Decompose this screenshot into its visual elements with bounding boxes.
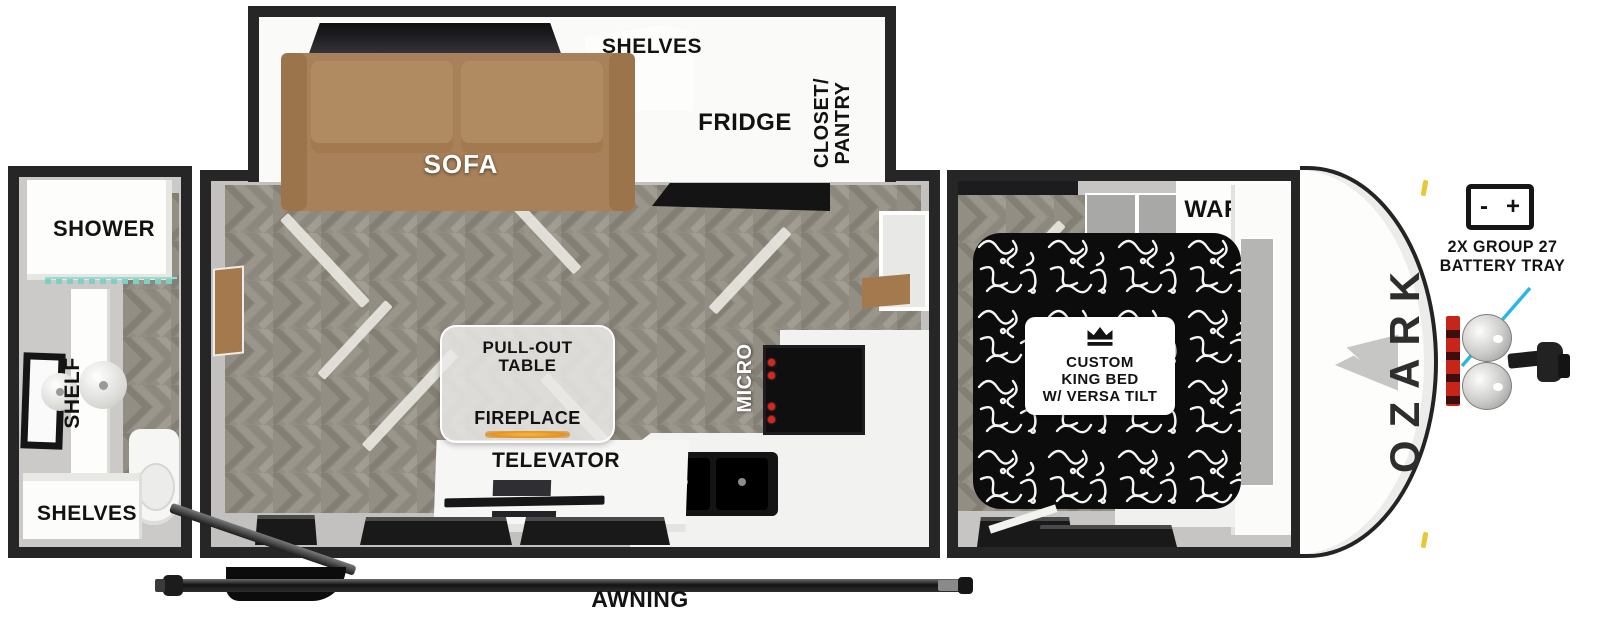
pullout-label-line1: PULL-OUT bbox=[442, 339, 613, 357]
sofa-cushion bbox=[461, 61, 603, 153]
closet-label-line1: CLOSET/ bbox=[811, 78, 833, 168]
tv-bar bbox=[444, 496, 604, 508]
front-cap: OZARK bbox=[1300, 166, 1438, 558]
bed-label-box: CUSTOM KING BED W/ VERSA TILT bbox=[1025, 317, 1175, 415]
clearance-light-bottom bbox=[1421, 532, 1429, 549]
micro-label: MICRO bbox=[735, 328, 761, 428]
pull-out-table: PULL-OUT TABLE FIREPLACE bbox=[440, 325, 615, 443]
sofa-armrest-left bbox=[281, 53, 307, 211]
battery-tray bbox=[1446, 316, 1460, 406]
side-table bbox=[862, 274, 910, 308]
awning-end-left bbox=[163, 575, 183, 596]
closet-label-line2: PANTRY bbox=[832, 82, 854, 165]
bottom-window-2 bbox=[520, 517, 670, 545]
sofa-slideout-section: SHELVES FRIDGE CLOSET/ PANTRY SOFA bbox=[248, 6, 896, 182]
battery-icon: - + bbox=[1466, 184, 1534, 230]
battery-label-line1: 2X GROUP 27 bbox=[1425, 237, 1580, 256]
awning-knob-left bbox=[155, 579, 165, 592]
battery-plus: + bbox=[1506, 193, 1520, 221]
bedroom-section: WARD CUSTOM KING BED W/ VERSA TILT bbox=[947, 170, 1302, 558]
fireplace-label: FIREPLACE bbox=[442, 409, 613, 428]
shower-glass-door bbox=[45, 277, 177, 284]
bedroom-bottom-window bbox=[1035, 525, 1177, 547]
sofa-armrest-right bbox=[609, 53, 635, 211]
awning-label: AWNING bbox=[540, 587, 740, 611]
closet-pantry-label: CLOSET/ PANTRY bbox=[812, 73, 864, 173]
floorplan-canvas: SHOWER SHELF SHELVES bbox=[0, 0, 1600, 638]
stove bbox=[763, 345, 865, 435]
bed-label-line1: CUSTOM bbox=[1025, 355, 1175, 371]
shelf-label: SHELF bbox=[62, 348, 88, 438]
battery-tray-label: 2X GROUP 27 BATTERY TRAY bbox=[1425, 237, 1580, 275]
televator-label: TELEVATOR bbox=[455, 450, 656, 472]
bed-label-line2: KING BED bbox=[1025, 372, 1175, 388]
clearance-light-top bbox=[1421, 180, 1429, 197]
rear-bath-section: SHOWER SHELF SHELVES bbox=[8, 166, 192, 558]
sofa: SOFA bbox=[281, 53, 635, 211]
bedroom-window bbox=[958, 181, 1078, 195]
sofa-cushion bbox=[311, 61, 453, 153]
fireplace-flame bbox=[485, 431, 571, 438]
crown-icon bbox=[1085, 325, 1115, 349]
tv-base bbox=[492, 511, 556, 517]
hitch-knob bbox=[1558, 354, 1570, 378]
tv bbox=[493, 480, 552, 496]
bath-shelves-label: SHELVES bbox=[27, 503, 147, 525]
bottom-window-1 bbox=[360, 517, 512, 545]
pullout-label-line2: TABLE bbox=[442, 357, 613, 375]
main-section: MICRO TELEVATOR PULL-OUT TABLE FIREPLACE bbox=[200, 170, 940, 558]
awning-end-right bbox=[958, 577, 973, 594]
battery-minus: - bbox=[1480, 193, 1488, 221]
wardrobe-door bbox=[1239, 237, 1275, 487]
battery-tank-2 bbox=[1462, 362, 1512, 410]
sofa-label: SOFA bbox=[391, 151, 531, 178]
bed-label-line3: W/ VERSA TILT bbox=[1025, 389, 1175, 405]
fridge-label: FRIDGE bbox=[685, 110, 805, 135]
battery-label-line2: BATTERY TRAY bbox=[1425, 256, 1580, 275]
shower-label: SHOWER bbox=[39, 217, 169, 240]
entry-door bbox=[213, 265, 244, 356]
battery-tank-1 bbox=[1462, 314, 1512, 362]
